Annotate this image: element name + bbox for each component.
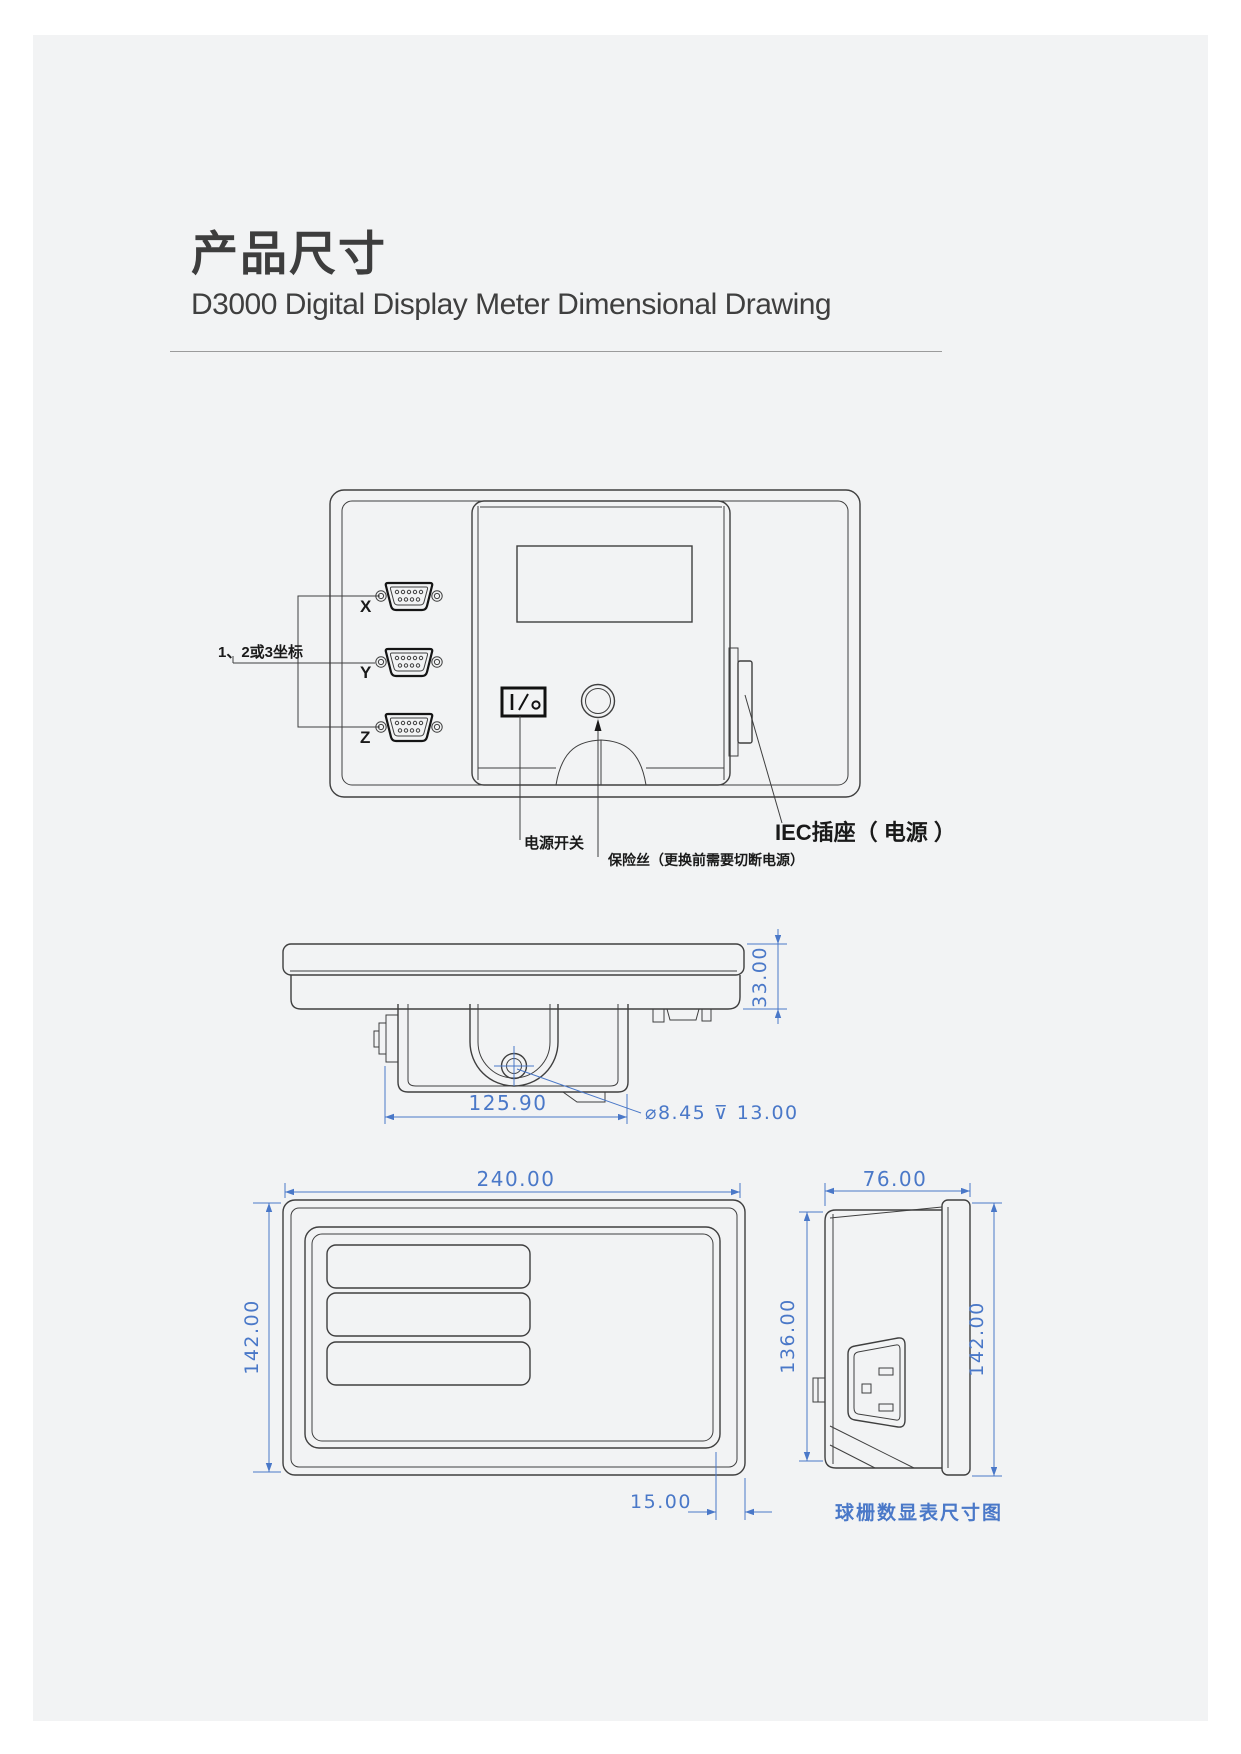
dim-142-front: 142.00 (241, 1299, 263, 1374)
fuse-leader-arrow (595, 719, 602, 731)
dim-125-90: 125.90 (469, 1091, 548, 1115)
cable-cutout (556, 740, 646, 785)
display-slot-1 (327, 1245, 530, 1288)
power-switch (502, 688, 545, 716)
connector-z-label: Z (360, 728, 370, 747)
fold-stand (830, 1426, 914, 1468)
axis-bracket-label: 1、2或3坐标 (218, 643, 303, 661)
top-profile-view: 33.00 125.90 ⌀8.45 ⊽ 13.00 (283, 929, 799, 1124)
iec-inlet (848, 1338, 905, 1427)
dim-76: 76.00 (863, 1167, 928, 1191)
side-tab (813, 1378, 825, 1402)
page: 产品尺寸 D3000 Digital Display Meter Dimensi… (0, 0, 1241, 1754)
front-view: 240.00 142.00 15.00 (241, 1167, 772, 1520)
dim-136: 136.00 (777, 1298, 799, 1373)
display-window (517, 546, 692, 622)
display-slot-3 (327, 1342, 530, 1385)
side-view: 76.00 136.00 142.00 球栅数显表尺寸图 (777, 1167, 1003, 1524)
iec-socket-edge (729, 648, 752, 756)
fuse-label: 保险丝（更换前需要切断电源） (607, 852, 804, 868)
dimensional-drawing: X Y Z 1、2或3坐标 (0, 0, 1241, 1754)
connector-y-label: Y (360, 663, 372, 682)
mount-screw-hole (494, 1046, 534, 1086)
power-switch-label: 电源开关 (524, 834, 584, 852)
iec-label: IEC插座（ 电源 ） (775, 820, 956, 845)
dim-142-side: 142.00 (966, 1301, 988, 1376)
connector-x-label: X (360, 597, 372, 616)
display-slot-2 (327, 1293, 530, 1336)
dim-hole-note: ⌀8.45 ⊽ 13.00 (645, 1102, 799, 1124)
dim-33: 33.00 (749, 946, 771, 1008)
side-view-caption: 球栅数显表尺寸图 (835, 1501, 1003, 1524)
fuse-holder (582, 685, 615, 718)
dim-15: 15.00 (630, 1491, 692, 1513)
dim-240: 240.00 (477, 1167, 556, 1191)
back-view: X Y Z 1、2或3坐标 (218, 490, 956, 868)
